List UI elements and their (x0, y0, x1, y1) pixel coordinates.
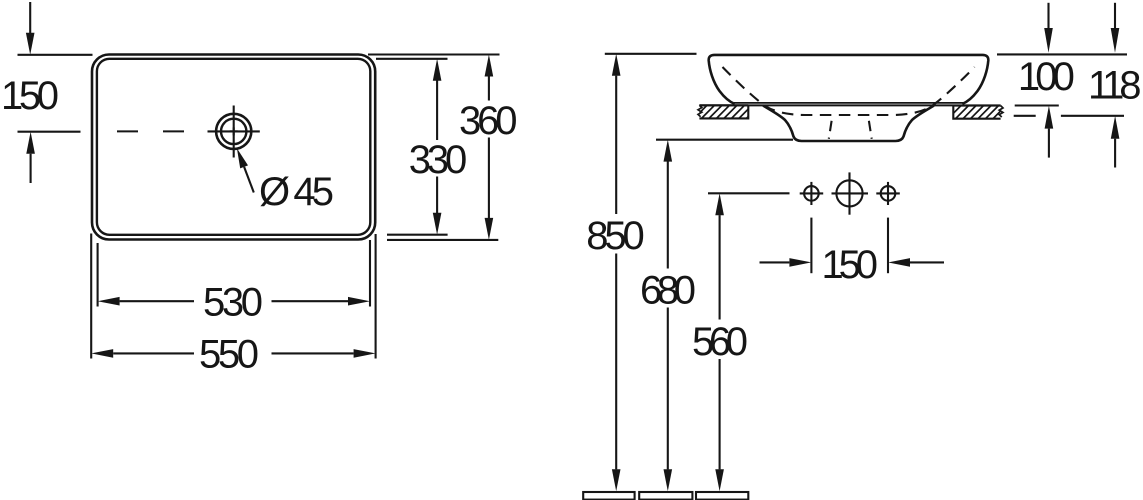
svg-text:150: 150 (1, 74, 59, 118)
svg-text:330: 330 (409, 138, 468, 182)
svg-text:850: 850 (586, 214, 645, 258)
svg-text:Ø 45: Ø 45 (259, 170, 334, 214)
svg-text:150: 150 (822, 243, 879, 287)
svg-text:118: 118 (1088, 64, 1142, 108)
svg-text:550: 550 (199, 333, 259, 377)
svg-text:560: 560 (692, 320, 748, 364)
svg-text:360: 360 (459, 99, 518, 143)
svg-text:680: 680 (640, 268, 696, 312)
svg-text:100: 100 (1018, 55, 1075, 99)
svg-text:530: 530 (203, 280, 263, 324)
